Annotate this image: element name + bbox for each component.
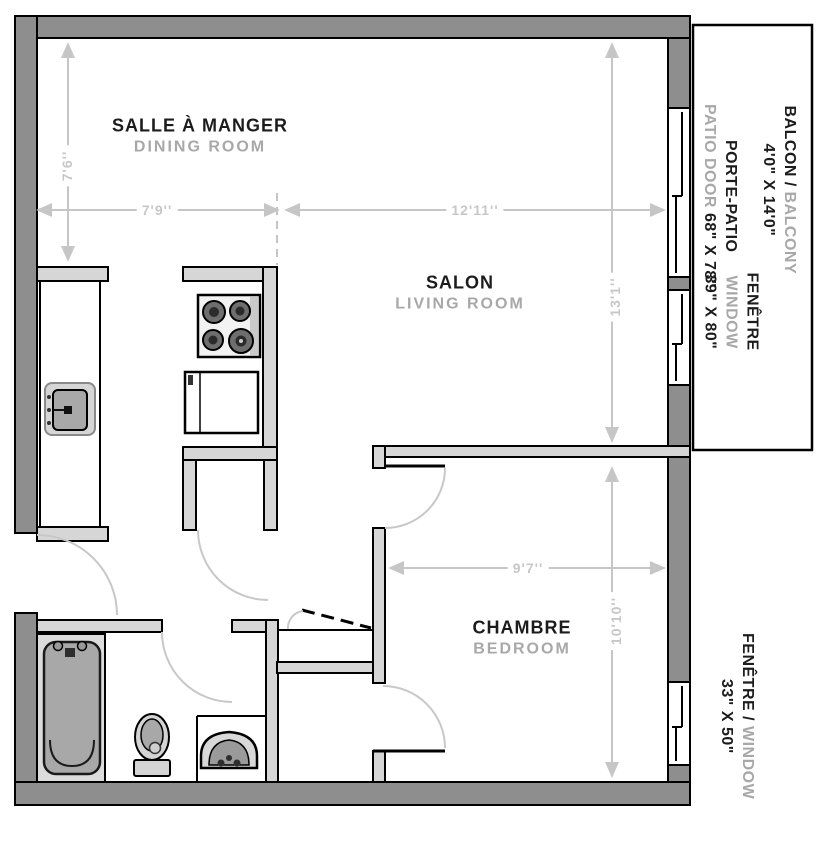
stove-icon: [198, 295, 260, 357]
balcony-label: BALCON /BALCONY 4'0" X 14'0": [758, 83, 800, 298]
sliding-patio-door: [668, 108, 690, 277]
dimension-bedroom-depth: 10'10'': [608, 592, 624, 650]
entry-door-arc: [37, 535, 117, 615]
bifold-door: [302, 610, 371, 628]
room-name-fr: CHAMBRE: [473, 618, 572, 639]
dimension-bedroom-width: 9'7'': [508, 560, 549, 576]
bedroom-window-label: FENÊTRE /WINDOW 33" X 50": [716, 611, 758, 821]
room-name-en: LIVING ROOM: [395, 296, 525, 314]
bifold-door-arc: [288, 611, 303, 629]
dimension-living-width: 12'11'': [446, 202, 503, 218]
dimension-dining-width: 7'9'': [137, 202, 178, 218]
closet-door-arc: [383, 686, 445, 748]
room-label-bedroom: CHAMBRE BEDROOM: [473, 618, 572, 659]
pantry-door-arc: [198, 530, 268, 600]
toilet-icon: [134, 714, 170, 776]
dimension-living-depth: 13'1'': [607, 272, 623, 321]
balcony-name-fr: BALCON /: [781, 106, 798, 187]
room-name-fr: SALON: [395, 273, 525, 294]
window-size: 39" X 80": [700, 225, 721, 400]
kitchen-sink-icon: [45, 383, 95, 435]
bathroom-door-arc: [162, 632, 232, 702]
room-label-living: SALON LIVING ROOM: [395, 273, 525, 314]
living-window-label: FENÊTRE WINDOW 39" X 80": [700, 225, 763, 400]
room-label-dining: SALLE À MANGER DINING ROOM: [112, 116, 288, 157]
patio-door-name-en: PATIO DOOR: [701, 104, 718, 208]
room-name-fr: SALLE À MANGER: [112, 116, 288, 137]
bathtub-icon: [37, 634, 105, 782]
room-name-en: DINING ROOM: [112, 139, 288, 157]
window-name-fr: FENÊTRE /: [739, 633, 756, 721]
window-size: 33" X 50": [716, 611, 737, 821]
fridge-handle: [188, 375, 193, 385]
window-name-en: WINDOW: [739, 726, 756, 799]
interior-walls: [37, 267, 690, 782]
bedroom-window: [668, 682, 690, 765]
bedroom-door-arc: [385, 468, 445, 528]
room-name-en: BEDROOM: [473, 641, 572, 659]
window-name-fr: FENÊTRE: [742, 225, 763, 400]
refrigerator-icon: [185, 372, 258, 433]
window-name-en: WINDOW: [721, 225, 742, 400]
living-room-window: [668, 290, 690, 385]
floor-plan: SALLE À MANGER DINING ROOM SALON LIVING …: [0, 0, 828, 850]
dimension-dining-depth: 7'6'': [59, 146, 75, 187]
bathroom-sink-icon: [201, 732, 257, 768]
balcony-name-en: BALCONY: [781, 192, 798, 275]
